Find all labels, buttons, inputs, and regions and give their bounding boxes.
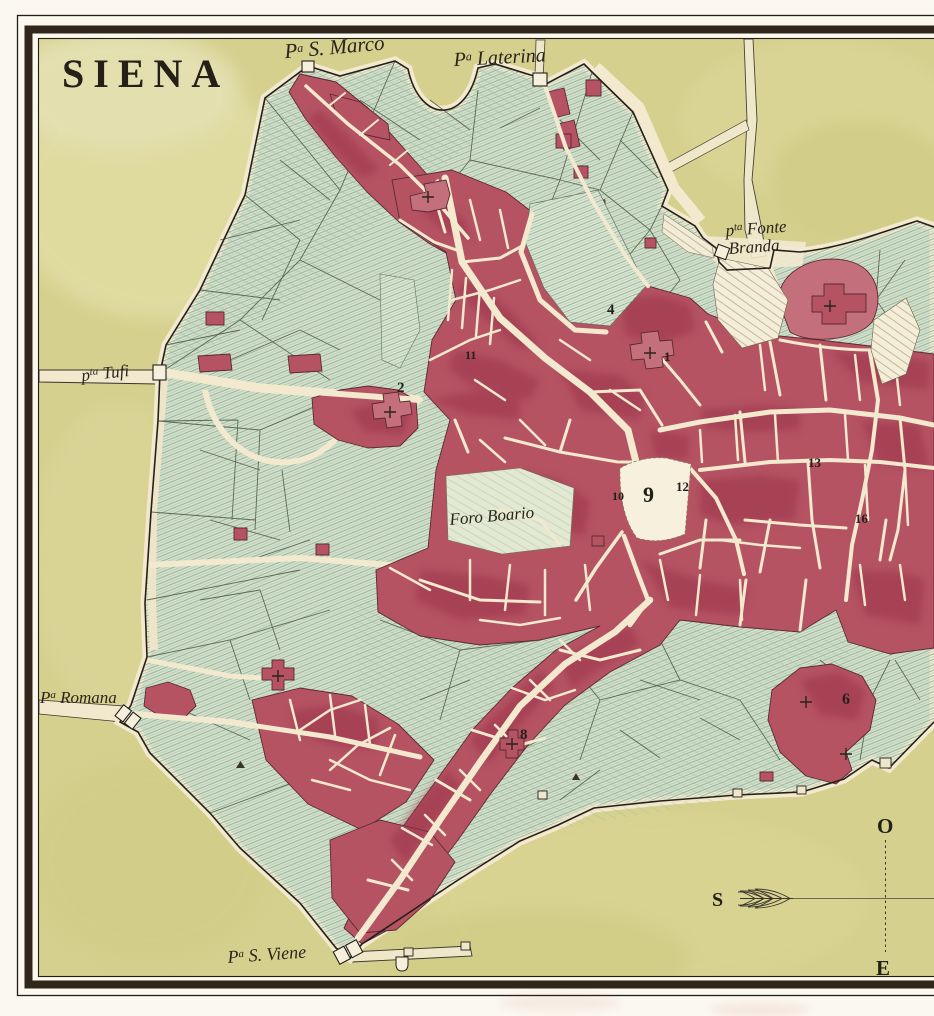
- svg-text:1: 1: [664, 349, 671, 364]
- svg-text:4: 4: [607, 302, 615, 318]
- svg-text:11: 11: [465, 348, 476, 362]
- svg-text:6: 6: [842, 691, 850, 708]
- svg-text:S: S: [712, 889, 723, 911]
- svg-text:12: 12: [676, 479, 689, 494]
- svg-text:10: 10: [612, 489, 624, 503]
- svg-text:8: 8: [520, 727, 528, 743]
- svg-text:O: O: [877, 814, 893, 838]
- svg-text:Branda: Branda: [728, 235, 780, 258]
- svg-text:9: 9: [643, 482, 654, 507]
- svg-text:16: 16: [855, 511, 869, 526]
- svg-text:13: 13: [808, 455, 822, 470]
- svg-text:2: 2: [397, 380, 405, 396]
- svg-text:SIENA: SIENA: [62, 51, 229, 96]
